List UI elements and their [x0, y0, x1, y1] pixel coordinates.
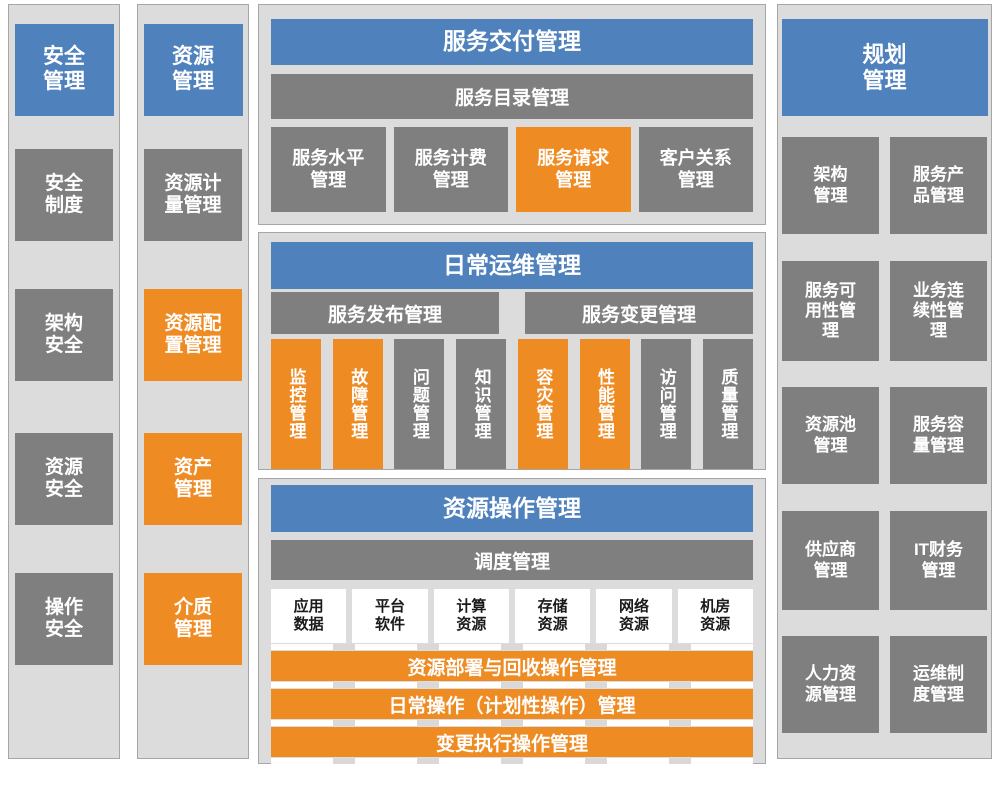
service-catalog-bar-label: 服务目录管理	[455, 83, 569, 110]
planning-row: 供应商 管理 IT财务 管理	[782, 511, 987, 610]
storage-resource-label: 存储 资源	[538, 598, 568, 633]
network-resource-box: 网络 资源	[596, 589, 671, 643]
architecture-mgmt-box: 架构 管理	[782, 137, 879, 234]
service-release-bar-label: 服务发布管理	[328, 300, 442, 327]
supplier-mgmt-box: 供应商 管理	[782, 511, 879, 610]
resource-item-configuration: 资源配 置管理	[144, 289, 242, 381]
security-management-header-label: 安全 管理	[43, 45, 85, 95]
disaster-recovery-box: 容灾管理	[518, 339, 568, 469]
grid-gap-row	[271, 720, 753, 726]
quality-label: 质量管理	[719, 368, 736, 440]
daily-operations-title: 日常运维管理	[271, 242, 753, 289]
security-management-column: 安全 管理 安全 制度 架构 安全 资源 安全 操作 安全	[8, 4, 120, 759]
performance-label: 性能管理	[596, 368, 613, 440]
security-management-header: 安全 管理	[15, 24, 114, 116]
resource-item-label: 介质 管理	[174, 597, 212, 642]
knowledge-box: 知识管理	[456, 339, 506, 469]
ops-policy-mgmt-label: 运维制 度管理	[913, 664, 964, 704]
planning-management-header: 规划 管理	[782, 19, 988, 116]
service-delivery-row: 服务水平 管理 服务计费 管理 服务请求 管理 客户关系 管理	[271, 127, 753, 212]
resource-management-header-label: 资源 管理	[172, 45, 214, 95]
service-change-bar: 服务变更管理	[525, 292, 753, 334]
ops-policy-mgmt-box: 运维制 度管理	[890, 636, 987, 733]
service-capacity-mgmt-box: 服务容 量管理	[890, 387, 987, 484]
datacenter-resource-box: 机房 资源	[678, 589, 753, 643]
daily-operations-bars: 服务发布管理 服务变更管理	[271, 292, 753, 334]
service-catalog-bar: 服务目录管理	[271, 74, 753, 119]
resource-management-column: 资源 管理 资源计 量管理 资源配 置管理 资产 管理 介质 管理	[137, 4, 249, 759]
scheduling-bar-label: 调度管理	[474, 547, 550, 574]
security-item-resource: 资源 安全	[15, 433, 113, 525]
daily-planned-operations-label: 日常操作（计划性操作）管理	[388, 691, 635, 718]
resource-item-label: 资源计 量管理	[164, 173, 221, 218]
business-continuity-mgmt-label: 业务连 续性管 理	[913, 281, 964, 341]
resource-item-label: 资源配 置管理	[164, 313, 221, 358]
knowledge-label: 知识管理	[473, 368, 490, 440]
security-item-label: 操作 安全	[45, 597, 83, 642]
resource-operations-panel: 资源操作管理 调度管理 应用 数据 平台 软件 计算 资源 存储 资源 网络 资…	[258, 478, 766, 764]
planning-row: 架构 管理 服务产 品管理	[782, 137, 987, 234]
supplier-mgmt-label: 供应商 管理	[805, 540, 856, 580]
service-release-bar: 服务发布管理	[271, 292, 499, 334]
daily-operations-panel: 日常运维管理 服务发布管理 服务变更管理 监控管理 故障管理 问题管理 知识管理…	[258, 232, 766, 470]
quality-box: 质量管理	[703, 339, 753, 469]
change-execution-operations-bar: 变更执行操作管理	[271, 727, 753, 757]
resource-item-label: 资产 管理	[174, 457, 212, 502]
service-billing-box: 服务计费 管理	[394, 127, 509, 212]
incident-box: 故障管理	[333, 339, 383, 469]
grid-gap-row	[271, 644, 753, 650]
planning-row: 服务可 用性管 理 业务连 续性管 理	[782, 261, 987, 361]
change-execution-operations-label: 变更执行操作管理	[436, 729, 588, 756]
security-item-architecture: 架构 安全	[15, 289, 113, 381]
monitoring-box: 监控管理	[271, 339, 321, 469]
service-request-label: 服务请求 管理	[537, 148, 609, 190]
planning-row: 人力资 源管理 运维制 度管理	[782, 636, 987, 733]
service-availability-mgmt-box: 服务可 用性管 理	[782, 261, 879, 361]
service-capacity-mgmt-label: 服务容 量管理	[913, 415, 964, 455]
monitoring-label: 监控管理	[288, 368, 305, 440]
service-change-bar-label: 服务变更管理	[582, 300, 696, 327]
platform-software-label: 平台 软件	[375, 598, 405, 633]
disaster-recovery-label: 容灾管理	[534, 368, 551, 440]
architecture-mgmt-label: 架构 管理	[814, 165, 848, 205]
service-request-box: 服务请求 管理	[516, 127, 631, 212]
security-item-label: 安全 制度	[45, 173, 83, 218]
incident-label: 故障管理	[349, 368, 366, 440]
security-item-operation: 操作 安全	[15, 573, 113, 665]
compute-resource-label: 计算 资源	[456, 598, 486, 633]
resource-pool-mgmt-box: 资源池 管理	[782, 387, 879, 484]
resource-item-metering: 资源计 量管理	[144, 149, 242, 241]
service-availability-mgmt-label: 服务可 用性管 理	[805, 281, 856, 341]
service-delivery-panel: 服务交付管理 服务目录管理 服务水平 管理 服务计费 管理 服务请求 管理 客户…	[258, 4, 766, 225]
datacenter-resource-label: 机房 资源	[700, 598, 730, 633]
customer-relation-box: 客户关系 管理	[639, 127, 754, 212]
grid-gap-row	[271, 758, 753, 764]
deploy-reclaim-operations-bar: 资源部署与回收操作管理	[271, 651, 753, 681]
resource-item-asset: 资产 管理	[144, 433, 242, 525]
grid-gap-row	[271, 682, 753, 688]
network-resource-label: 网络 资源	[619, 598, 649, 633]
performance-box: 性能管理	[580, 339, 630, 469]
service-level-label: 服务水平 管理	[292, 148, 364, 190]
access-label: 访问管理	[658, 368, 675, 440]
it-finance-mgmt-label: IT财务 管理	[914, 540, 963, 580]
service-product-mgmt-label: 服务产 品管理	[913, 165, 964, 205]
planning-management-header-label: 规划 管理	[862, 42, 906, 94]
problem-box: 问题管理	[394, 339, 444, 469]
app-data-label: 应用 数据	[294, 598, 324, 633]
compute-resource-box: 计算 资源	[434, 589, 509, 643]
planning-row: 资源池 管理 服务容 量管理	[782, 387, 987, 484]
service-delivery-title: 服务交付管理	[271, 19, 753, 65]
security-item-label: 架构 安全	[45, 313, 83, 358]
daily-planned-operations-bar: 日常操作（计划性操作）管理	[271, 689, 753, 719]
resource-management-header: 资源 管理	[144, 24, 243, 116]
resource-types-row: 应用 数据 平台 软件 计算 资源 存储 资源 网络 资源 机房 资源	[271, 589, 753, 643]
resource-operations-title: 资源操作管理	[271, 485, 753, 532]
service-delivery-title-label: 服务交付管理	[443, 28, 581, 55]
business-continuity-mgmt-box: 业务连 续性管 理	[890, 261, 987, 361]
deploy-reclaim-operations-label: 资源部署与回收操作管理	[407, 653, 616, 680]
human-resource-mgmt-box: 人力资 源管理	[782, 636, 879, 733]
it-finance-mgmt-box: IT财务 管理	[890, 511, 987, 610]
service-product-mgmt-box: 服务产 品管理	[890, 137, 987, 234]
resource-operations-title-label: 资源操作管理	[443, 495, 581, 522]
security-item-label: 资源 安全	[45, 457, 83, 502]
security-item-policy: 安全 制度	[15, 149, 113, 241]
resource-item-media: 介质 管理	[144, 573, 242, 665]
storage-resource-box: 存储 资源	[515, 589, 590, 643]
planning-management-column: 规划 管理 架构 管理 服务产 品管理 服务可 用性管 理 业务连 续性管 理 …	[777, 4, 992, 759]
platform-software-box: 平台 软件	[352, 589, 427, 643]
daily-operations-row: 监控管理 故障管理 问题管理 知识管理 容灾管理 性能管理 访问管理 质量管理	[271, 339, 753, 469]
service-level-box: 服务水平 管理	[271, 127, 386, 212]
it-operations-framework-diagram: { "colors": { "blue": "#4F81BD", "orange…	[0, 0, 1000, 785]
app-data-box: 应用 数据	[271, 589, 346, 643]
problem-label: 问题管理	[411, 368, 428, 440]
customer-relation-label: 客户关系 管理	[660, 148, 732, 190]
resource-pool-mgmt-label: 资源池 管理	[805, 415, 856, 455]
access-box: 访问管理	[641, 339, 691, 469]
service-billing-label: 服务计费 管理	[415, 148, 487, 190]
daily-operations-title-label: 日常运维管理	[443, 252, 581, 279]
scheduling-bar: 调度管理	[271, 540, 753, 580]
human-resource-mgmt-label: 人力资 源管理	[805, 664, 856, 704]
